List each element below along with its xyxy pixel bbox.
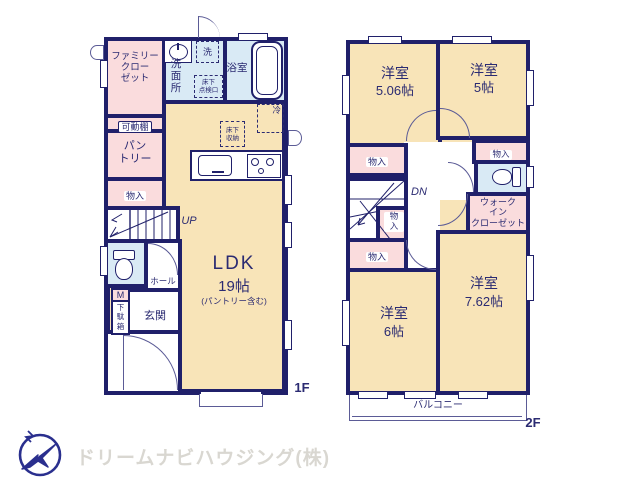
f2-toilet-bowl bbox=[492, 169, 512, 185]
f1-ldk-name: LDK bbox=[178, 253, 290, 275]
f2-window-bottom-1 bbox=[358, 391, 388, 399]
floorplan-2f: 洋室 5.06帖 洋室 5帖 物入 物入 DN 物 入 ウォーク イン クローゼ… bbox=[320, 0, 640, 480]
f2-bedroom3-size: 6帖 bbox=[352, 325, 436, 340]
f2-window-top-1 bbox=[368, 36, 402, 44]
f2-bedroom3-label-group: 洋室 6帖 bbox=[352, 305, 436, 340]
f1-stove bbox=[247, 154, 281, 178]
f1-burner-3 bbox=[258, 168, 264, 174]
f1-floor-label: 1F bbox=[290, 381, 314, 396]
f1-window-right-2 bbox=[284, 222, 292, 248]
f2-bedroom1-name: 洋室 bbox=[354, 65, 436, 81]
f1-ldk-label-group: LDK 19帖 (パントリー含む) bbox=[178, 253, 290, 307]
f1-underfloor-hatch-label: 床下 点検口 bbox=[195, 79, 222, 95]
f1-bathtub bbox=[251, 41, 283, 100]
f2-storage-a-label-wrap: 物入 bbox=[350, 152, 404, 170]
f2-storage-b-label: 物入 bbox=[490, 150, 511, 160]
f1-ldk-size: 19帖 bbox=[178, 278, 290, 295]
f1-washroom-label: 洗 面 所 bbox=[166, 58, 186, 94]
f1-window-top-bath bbox=[238, 33, 268, 41]
f2-bedroom4-size: 7.62帖 bbox=[442, 295, 526, 310]
f1-underfloor-hatch-box: 床下 点検口 bbox=[194, 75, 223, 98]
f1-window-right-3 bbox=[284, 320, 292, 350]
f1-fridge-label: 冷 bbox=[258, 105, 283, 116]
f2-window-top-2 bbox=[452, 36, 492, 44]
f2-window-right-2 bbox=[526, 166, 534, 188]
f2-bedroom4-label-group: 洋室 7.62帖 bbox=[442, 275, 526, 310]
f2-bedroom4 bbox=[436, 230, 530, 395]
f1-fridge-box: 冷 bbox=[257, 104, 284, 133]
f1-stairs-treads bbox=[108, 210, 176, 239]
f1-shelf-label-wrap: 可動棚 bbox=[109, 117, 161, 135]
f2-bedroom1-label-group: 洋室 5.06帖 bbox=[354, 65, 436, 99]
f1-ldk-note: (パントリー含む) bbox=[178, 297, 290, 307]
f2-bedroom1-size: 5.06帖 bbox=[354, 84, 436, 99]
f2-storage-c-label: 物 入 bbox=[384, 212, 404, 232]
f1-laundry-label: 洗 bbox=[197, 47, 218, 57]
f2-window-left-1 bbox=[342, 75, 350, 115]
f1-window-left-mid bbox=[100, 246, 108, 276]
f1-shelf-label: 可動棚 bbox=[118, 121, 151, 133]
f2-window-bottom-3 bbox=[458, 391, 488, 399]
f1-door-right-exterior bbox=[288, 130, 302, 146]
f2-window-left-2 bbox=[342, 300, 350, 346]
f2-balcony-rail bbox=[352, 416, 522, 417]
f2-bedroom3-name: 洋室 bbox=[352, 305, 436, 321]
f1-burner-2 bbox=[266, 158, 274, 166]
f1-hall-label: ホール bbox=[146, 277, 180, 287]
f2-storage-d-label-wrap: 物入 bbox=[350, 247, 404, 265]
f2-bedroom4-name: 洋室 bbox=[442, 275, 526, 291]
floorplan-1f: 洗 床下 点検口 冷 床下 収納 ファミリー クロー ゼット 可動棚 パン トリ… bbox=[0, 0, 320, 480]
f1-bathtub-inner bbox=[256, 46, 278, 95]
f1-up-label: UP bbox=[177, 215, 201, 228]
footer: ドリームナビハウジング(株) bbox=[0, 425, 640, 480]
f2-storage-b-label-wrap: 物入 bbox=[476, 144, 526, 162]
f1-storage-label-wrap: 物入 bbox=[106, 186, 164, 204]
f2-bedroom2-name: 洋室 bbox=[444, 62, 524, 78]
f1-window-right-1 bbox=[284, 175, 292, 205]
f1-meter-label: M bbox=[112, 290, 129, 300]
f2-storage-a-label: 物入 bbox=[366, 157, 388, 167]
f1-family-closet-label: ファミリー クロー ゼット bbox=[106, 52, 164, 85]
f1-toilet-bowl bbox=[115, 258, 133, 280]
f1-laundry-box: 洗 bbox=[196, 41, 219, 63]
f1-entrance-label: 玄関 bbox=[134, 310, 176, 323]
f2-balcony-label: バルコニー bbox=[350, 400, 526, 412]
f1-burner-1 bbox=[251, 158, 259, 166]
f1-storage-label: 物入 bbox=[124, 191, 146, 201]
f2-bedroom2-size: 5帖 bbox=[444, 81, 524, 96]
f2-window-right-3 bbox=[526, 255, 534, 301]
f1-terrace-step bbox=[199, 394, 263, 407]
f1-shoebox-label: 下 駄 箱 bbox=[113, 303, 128, 331]
f2-window-right-1 bbox=[526, 70, 534, 106]
f2-bedroom2-label-group: 洋室 5帖 bbox=[444, 62, 524, 96]
f1-kitchen-faucet bbox=[212, 171, 224, 174]
f1-door-left-exterior bbox=[90, 45, 104, 60]
f2-storage-d-label: 物入 bbox=[366, 252, 388, 262]
f1-vanity-tap bbox=[177, 43, 179, 50]
company-logo-icon bbox=[12, 427, 68, 479]
f1-underfloor-storage-label: 床下 収納 bbox=[221, 127, 244, 143]
f2-wic-label: ウォーク イン クローゼット bbox=[468, 197, 528, 228]
company-name: ドリームナビハウジング(株) bbox=[76, 443, 330, 470]
f1-underfloor-storage-box: 床下 収納 bbox=[220, 121, 245, 147]
f1-bathroom-label: 浴室 bbox=[224, 62, 250, 74]
f2-toilet-tank bbox=[512, 167, 521, 187]
f1-pantry-label: パン トリー bbox=[106, 140, 164, 165]
f1-door-top bbox=[198, 16, 220, 38]
f2-dn-label: DN bbox=[406, 186, 432, 199]
f2-window-bottom-2 bbox=[404, 391, 436, 399]
f1-window-left-top bbox=[100, 60, 108, 88]
